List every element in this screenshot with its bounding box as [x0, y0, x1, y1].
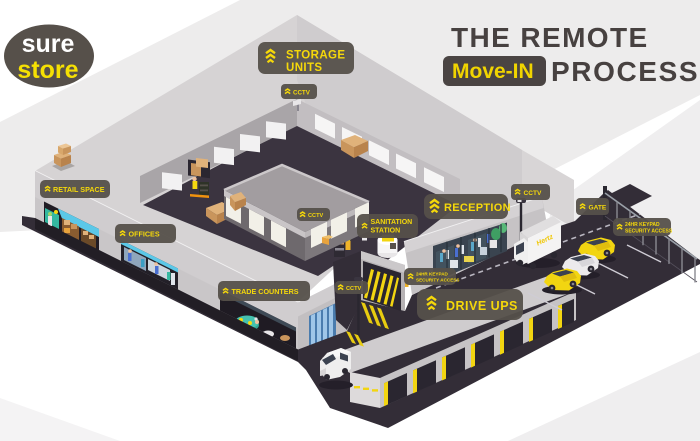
svg-text:THE REMOTE: THE REMOTE — [451, 22, 649, 53]
svg-text:CCTV: CCTV — [308, 213, 323, 219]
svg-text:CCTV: CCTV — [346, 286, 361, 292]
svg-text:OFFICES: OFFICES — [129, 230, 160, 239]
svg-text:24HR KEYPAD: 24HR KEYPAD — [625, 222, 660, 228]
svg-text:SANITATION: SANITATION — [371, 219, 413, 226]
svg-text:RECEPTION: RECEPTION — [444, 202, 511, 214]
svg-text:CCTV: CCTV — [293, 90, 311, 97]
svg-text:SECURITY ACCESS: SECURITY ACCESS — [625, 229, 673, 235]
svg-text:DRIVE UPS: DRIVE UPS — [446, 299, 518, 313]
svg-text:STATION: STATION — [371, 228, 401, 235]
svg-text:PROCESS: PROCESS — [551, 56, 699, 87]
svg-text:GATE: GATE — [589, 205, 607, 212]
svg-text:RETAIL SPACE: RETAIL SPACE — [53, 185, 105, 194]
svg-text:24HR KEYPAD: 24HR KEYPAD — [416, 272, 449, 277]
svg-text:UNITS: UNITS — [286, 62, 323, 74]
svg-text:STORAGE: STORAGE — [286, 50, 345, 62]
svg-text:sure: sure — [22, 30, 75, 58]
svg-text:Move-IN: Move-IN — [452, 60, 534, 83]
svg-text:store: store — [17, 56, 78, 84]
svg-text:TRADE COUNTERS: TRADE COUNTERS — [232, 287, 299, 296]
svg-text:CCTV: CCTV — [524, 190, 543, 197]
svg-text:SECURITY ACCESS: SECURITY ACCESS — [416, 278, 459, 283]
